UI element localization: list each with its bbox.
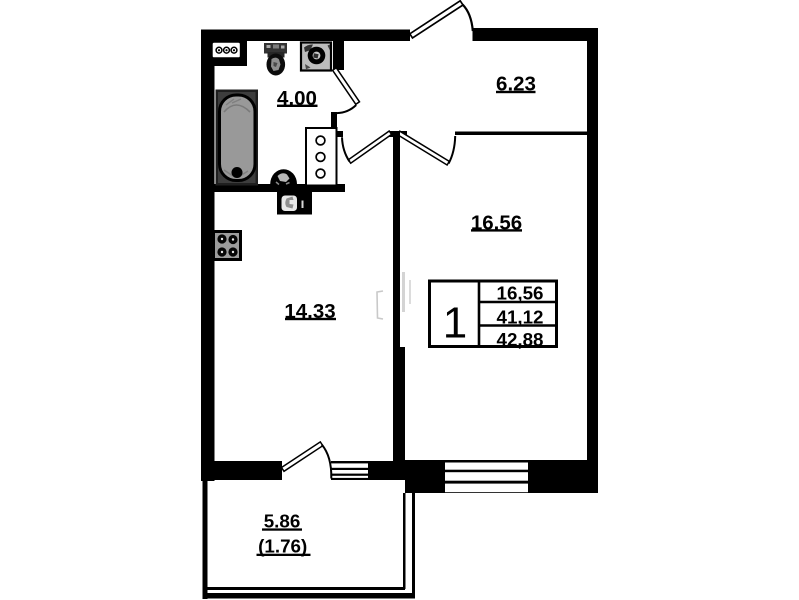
svg-text:(1.76): (1.76) [258, 535, 307, 556]
svg-text:1: 1 [443, 299, 467, 348]
svg-text:16,56: 16,56 [497, 283, 544, 304]
svg-text:42,88: 42,88 [497, 329, 544, 350]
svg-text:41,12: 41,12 [497, 307, 544, 328]
